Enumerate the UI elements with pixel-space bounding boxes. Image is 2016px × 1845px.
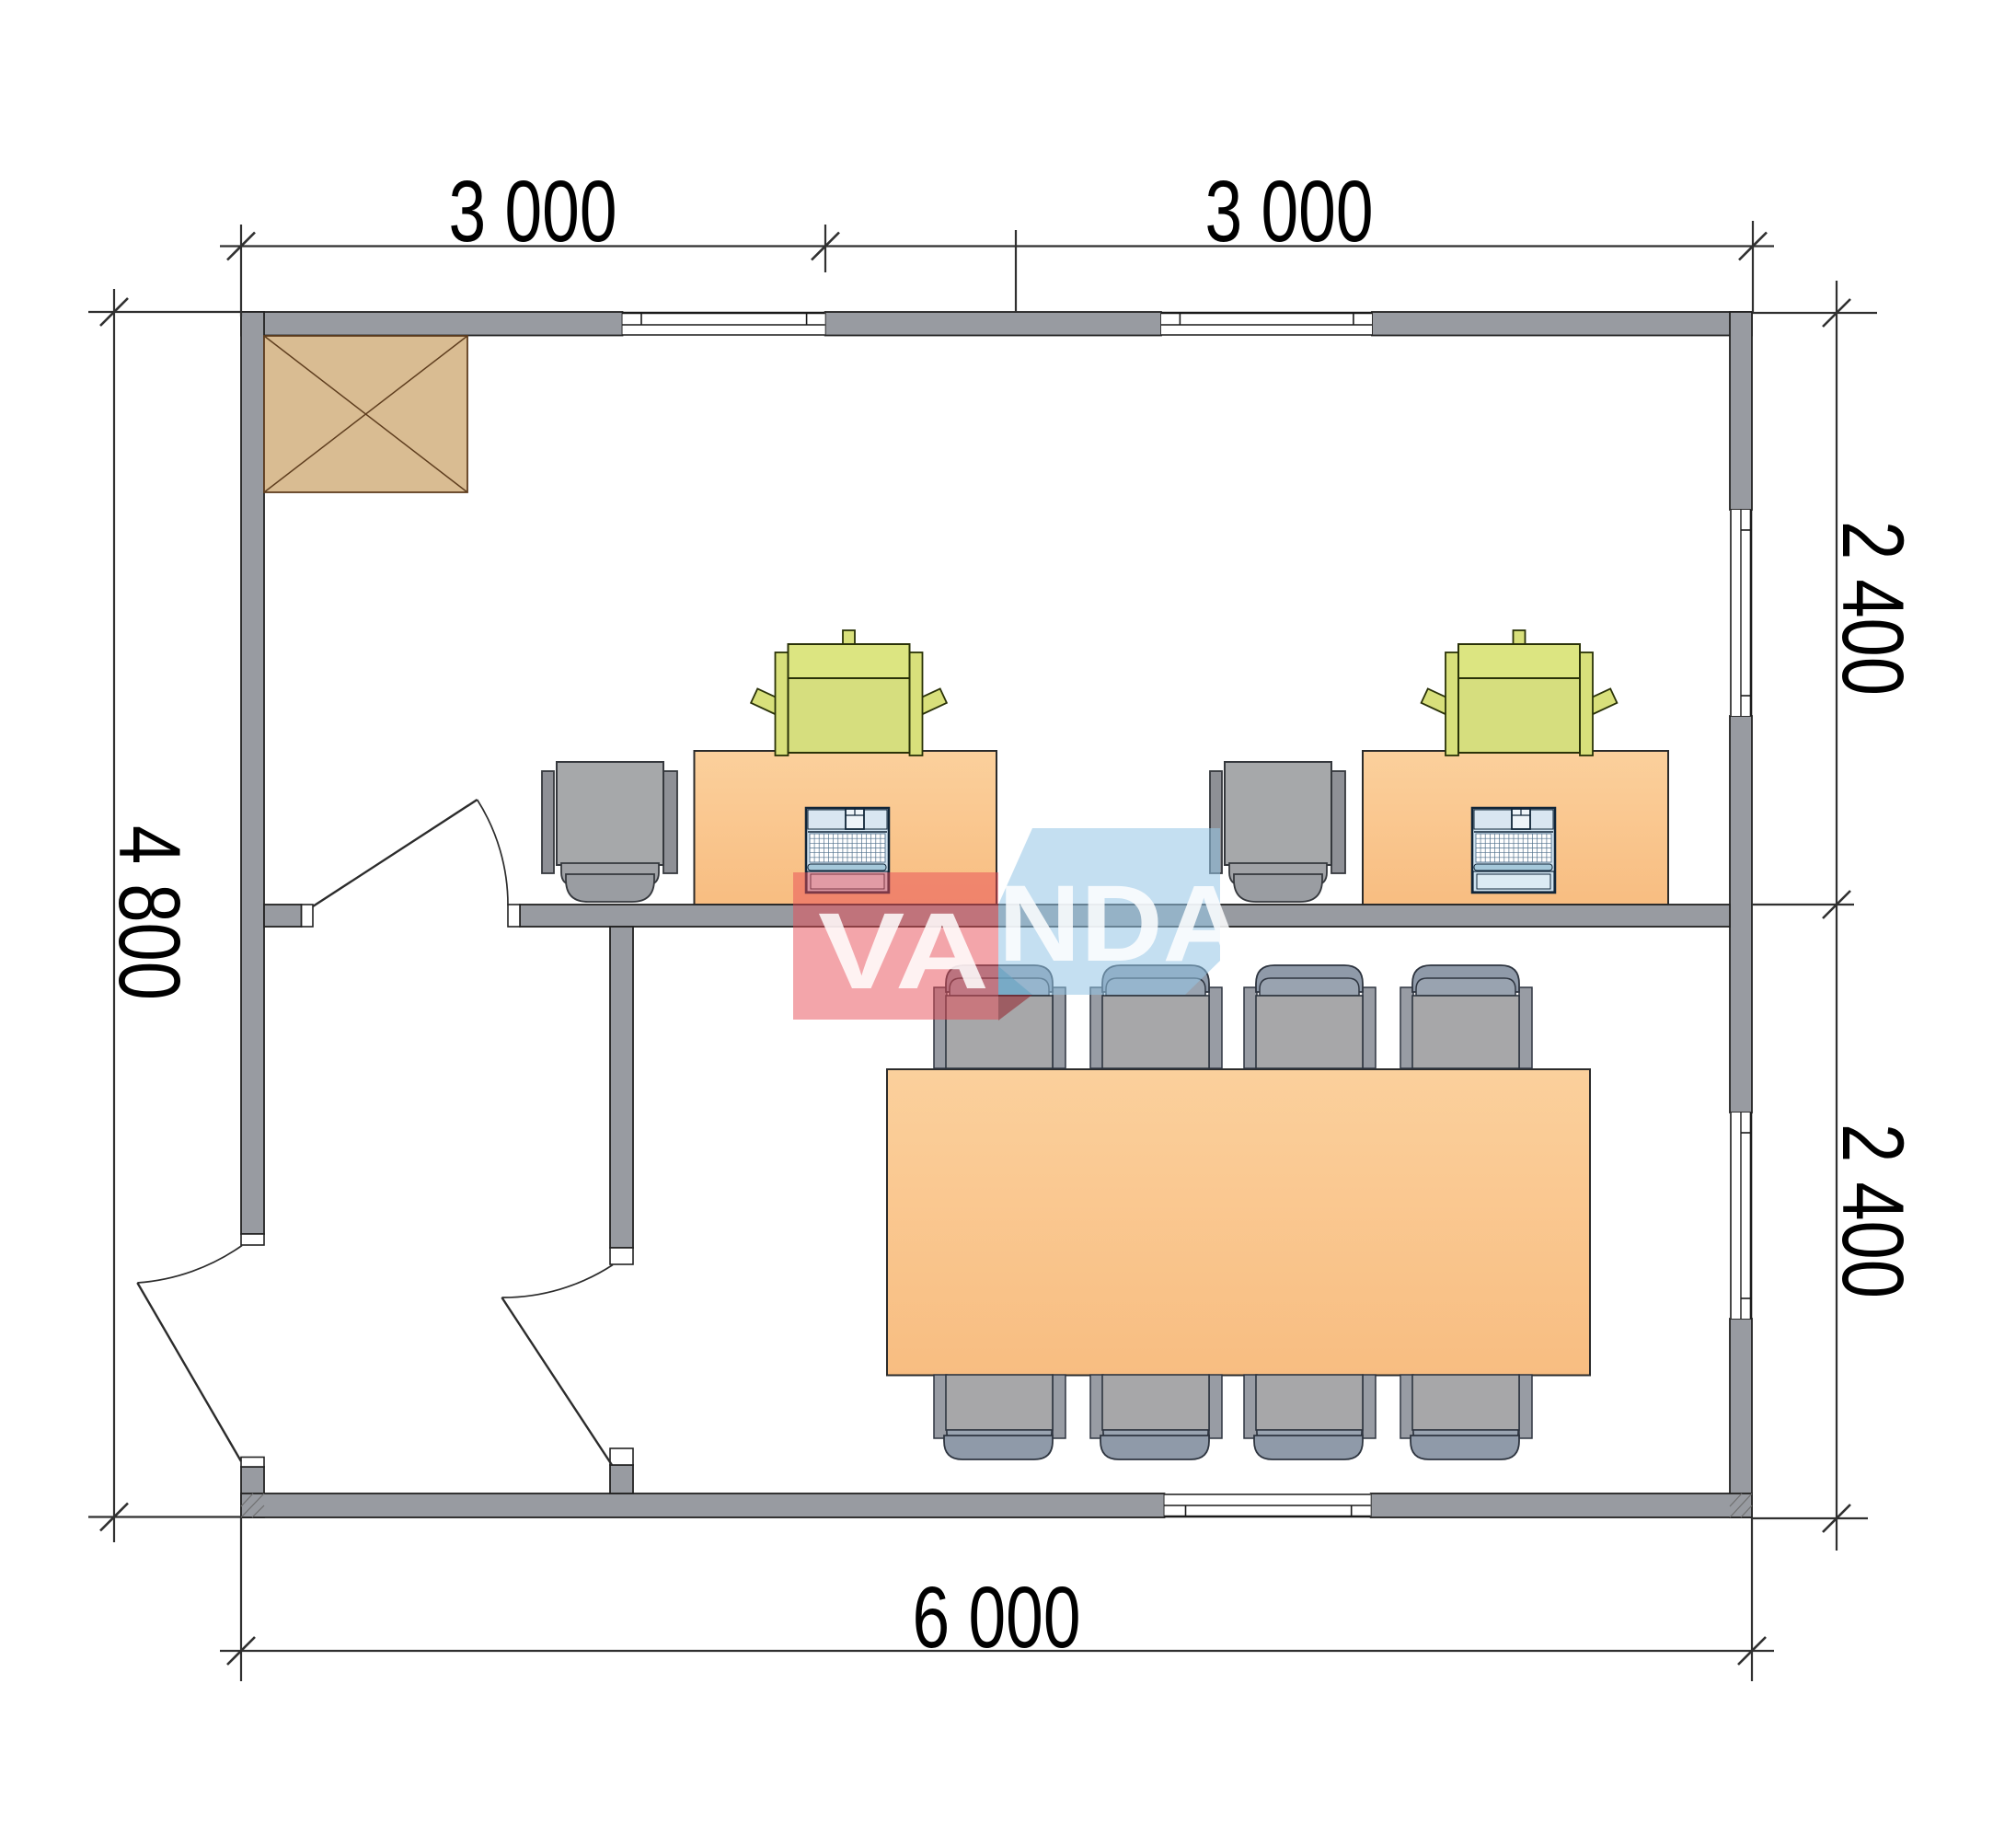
svg-text:3 000: 3 000: [1205, 163, 1374, 260]
svg-text:4 800: 4 800: [100, 825, 198, 1000]
svg-text:NDA: NDA: [998, 863, 1245, 985]
svg-text:2 400: 2 400: [1824, 1124, 1921, 1298]
svg-text:6 000: 6 000: [913, 1569, 1081, 1666]
svg-text:3 000: 3 000: [449, 163, 617, 260]
svg-text:VA: VA: [818, 891, 989, 1012]
svg-text:2 400: 2 400: [1824, 521, 1921, 696]
